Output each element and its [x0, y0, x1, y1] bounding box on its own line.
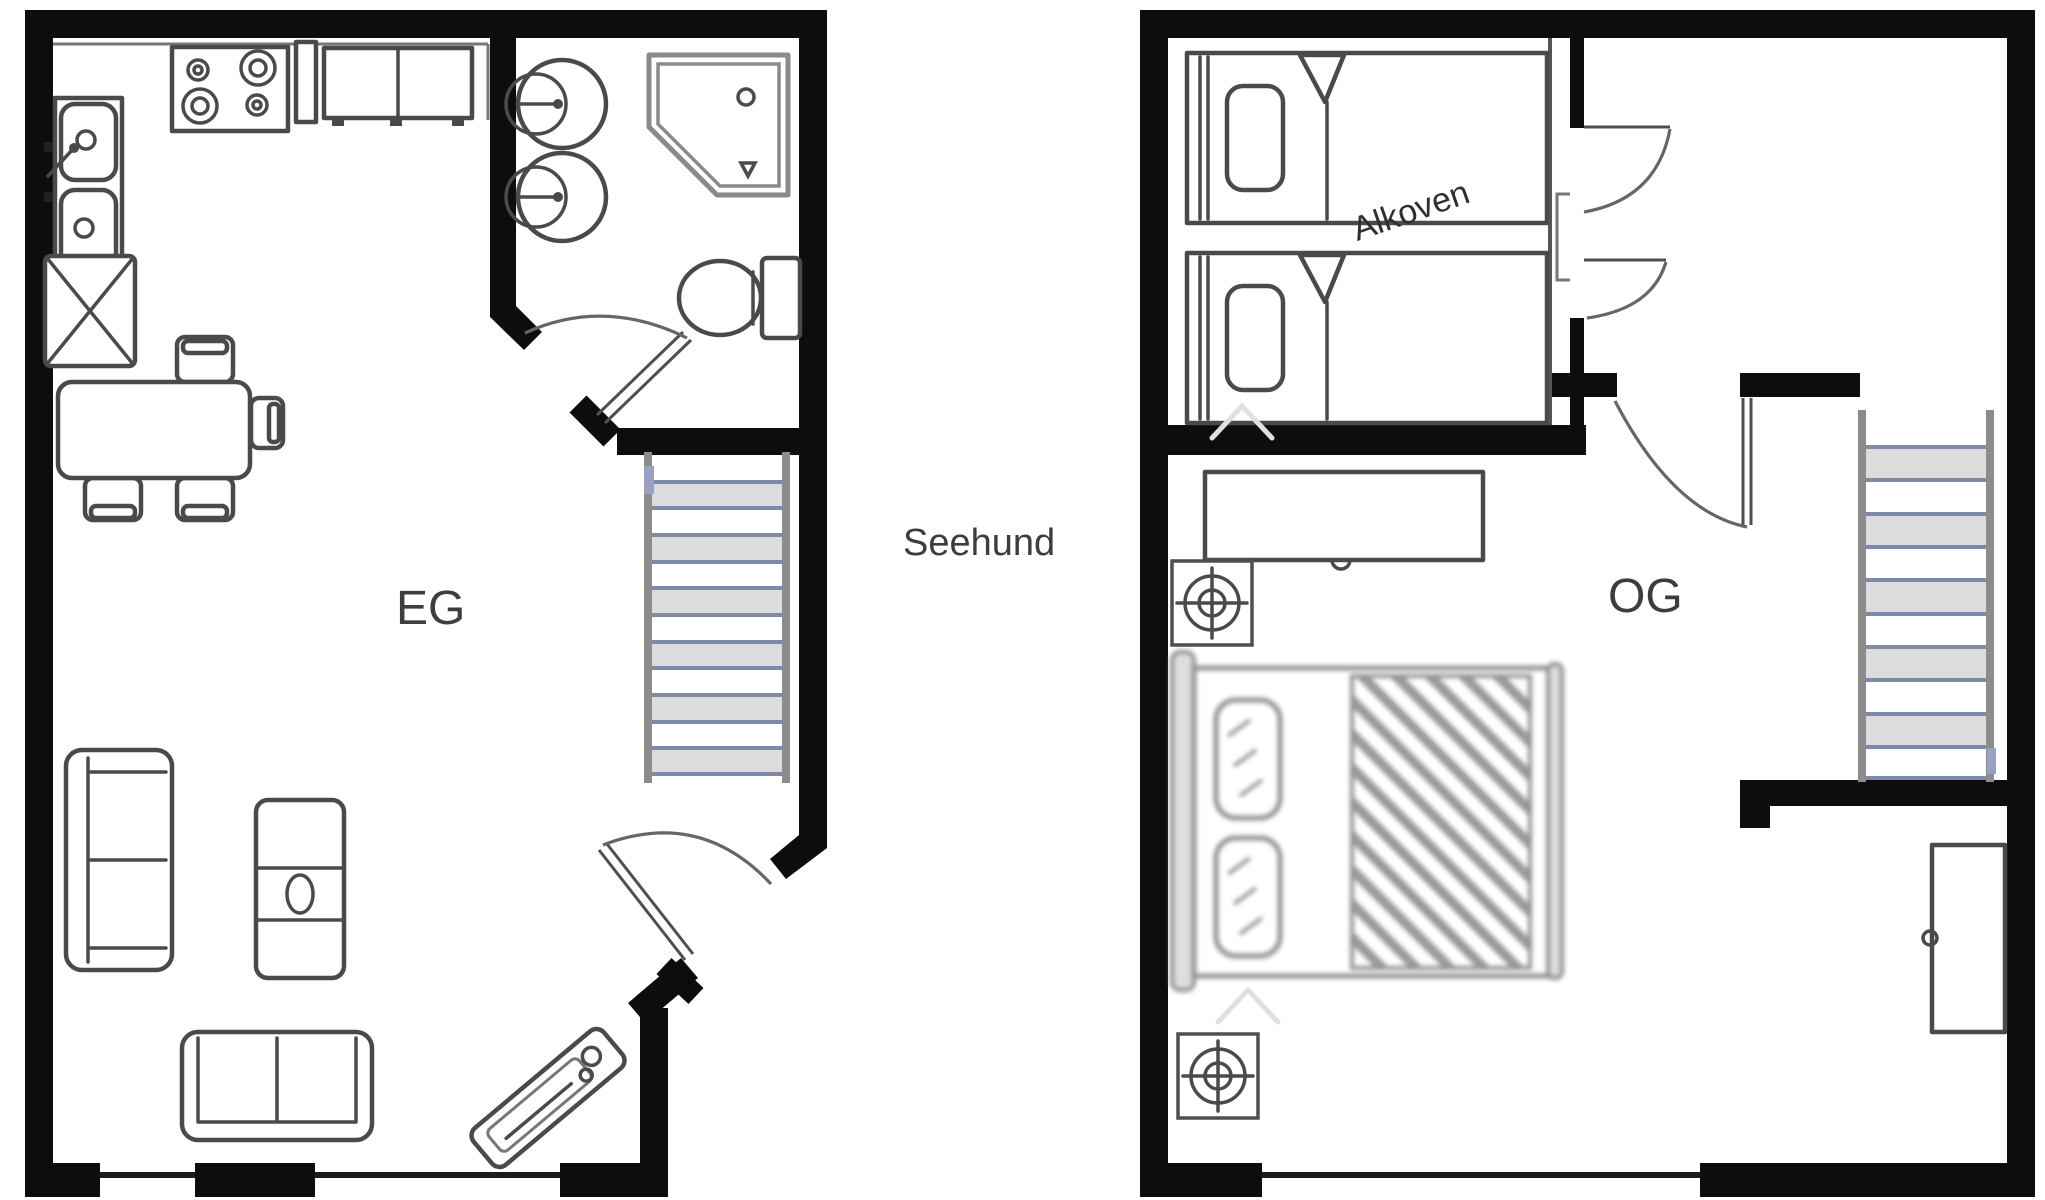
- washbasin: [506, 153, 606, 241]
- plan-title: Seehund: [903, 522, 1055, 565]
- dining-table: [58, 382, 250, 478]
- eg-floor-label: EG: [396, 584, 465, 634]
- stove-symbol: [172, 47, 288, 131]
- dining-chair: [251, 398, 283, 448]
- loveseat-sofa: [182, 1032, 372, 1140]
- sideboard: [1205, 472, 1483, 569]
- eg-windows: [100, 1172, 560, 1178]
- dining-chair: [177, 478, 233, 520]
- alcove-door-upper: [1584, 127, 1670, 212]
- bathroom-door: [525, 316, 691, 438]
- two-seat-sofa: [66, 750, 172, 970]
- entrance-door: [599, 833, 771, 960]
- armchair: [256, 800, 344, 978]
- floor-plan-page: EG OG Seehund Alkoven: [0, 0, 2045, 1200]
- alcove-door-lower: [1584, 260, 1666, 318]
- corner-shower: [649, 55, 788, 195]
- bathroom-area: [506, 55, 800, 438]
- ceiling-light-symbol: [1172, 561, 1252, 645]
- tall-cabinet-x-symbol: [45, 256, 135, 366]
- og-floor-plan: [1140, 10, 2035, 1197]
- door-frame: [1557, 194, 1570, 280]
- kitchen-sink-double: [44, 98, 122, 278]
- floor-plan-canvas: [0, 0, 2045, 1200]
- og-staircase: [1858, 410, 1996, 782]
- living-area: [66, 750, 629, 1171]
- wardrobe: [1923, 845, 2005, 1032]
- kitchen-area: [44, 42, 488, 366]
- washbasin: [506, 60, 606, 148]
- og-floor-label: OG: [1608, 572, 1683, 622]
- single-bed: [1187, 53, 1547, 223]
- ceiling-light-symbol: [1178, 1034, 1258, 1118]
- room-door: [1615, 398, 1751, 527]
- dining-chair: [177, 337, 233, 382]
- kitchen-cabinets: [296, 42, 472, 126]
- og-windows: [1262, 1172, 1700, 1178]
- single-bed: [1187, 253, 1547, 423]
- toilet: [679, 258, 800, 338]
- dining-chair: [85, 478, 141, 520]
- eg-staircase: [644, 452, 790, 783]
- double-bed: [1172, 652, 1562, 990]
- entry-bench: [467, 1025, 628, 1171]
